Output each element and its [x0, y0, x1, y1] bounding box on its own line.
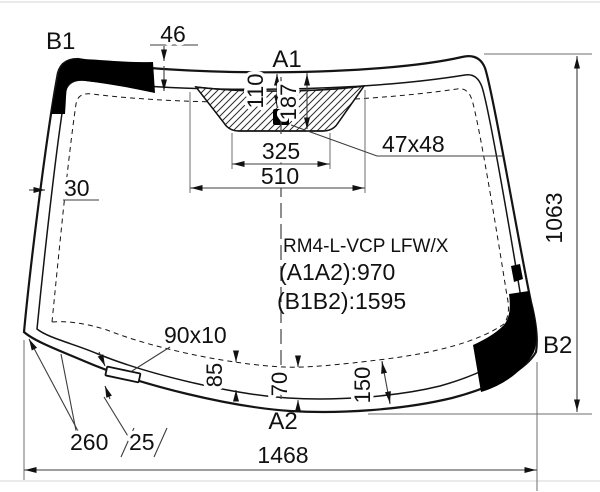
dim-150-label: 150	[350, 367, 375, 404]
dim-47x48-label: 47x48	[382, 131, 445, 157]
dim-70-label: 70	[267, 372, 292, 396]
dim-187-label: 187	[276, 84, 301, 121]
corner-label-b2: B2	[543, 332, 572, 359]
dim-25-label: 25	[129, 429, 155, 455]
dim-85-label: 85	[202, 363, 227, 387]
windshield-diagram: 46 30 B1 A1 B2 A2 110 187 325 510 47x48 …	[0, 0, 600, 492]
part-code: RM4-L-VCP LFW/X	[283, 236, 449, 257]
part-dim-b1b2: (B1B2):1595	[277, 288, 406, 314]
black-band-sliver	[511, 264, 523, 282]
dim-90x10-label: 90x10	[164, 322, 227, 348]
dim-46-label: 46	[160, 21, 186, 47]
part-dim-a1a2: (A1A2):970	[279, 259, 395, 285]
dim-90x10-leader	[132, 347, 170, 371]
corner-label-b1: B1	[46, 28, 75, 55]
dim-260-label: 260	[70, 429, 108, 455]
black-band-bottom-right	[473, 291, 536, 392]
dim-1063-label: 1063	[541, 192, 567, 243]
dim-30-label: 30	[64, 175, 90, 201]
black-band-top-left	[51, 59, 155, 114]
dim-1468-label: 1468	[257, 442, 308, 468]
dim-25-arrow-bottom	[105, 386, 110, 399]
corner-label-a2: A2	[268, 408, 297, 435]
dim-325-label: 325	[262, 138, 300, 164]
diagram-canvas: 46 30 B1 A1 B2 A2 110 187 325 510 47x48 …	[0, 0, 600, 492]
dim-25-slant-right	[154, 428, 167, 457]
dim-510-label: 510	[261, 163, 299, 189]
dim-110-label: 110	[243, 73, 268, 108]
corner-label-a1: A1	[272, 46, 301, 73]
dim-25-arrow-top	[99, 352, 105, 366]
